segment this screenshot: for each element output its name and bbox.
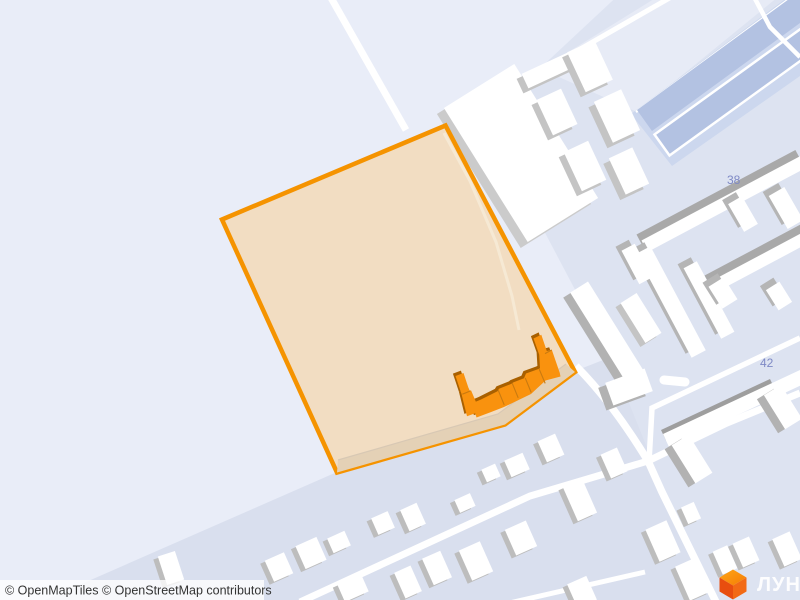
svg-text:42: 42 [760, 356, 774, 370]
svg-text:© OpenMapTiles © OpenStreetMap: © OpenMapTiles © OpenStreetMap contribut… [5, 584, 272, 598]
svg-text:ЛУН: ЛУН [757, 574, 800, 596]
svg-text:38: 38 [727, 173, 741, 187]
